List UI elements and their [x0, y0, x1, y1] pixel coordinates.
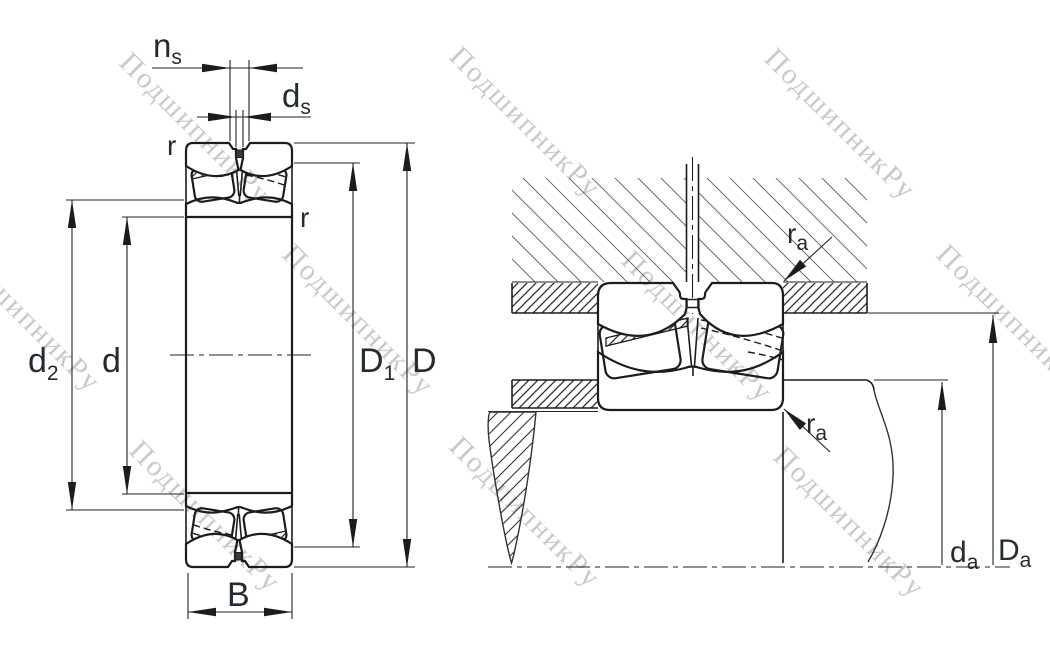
label-r-outer: r — [167, 130, 176, 161]
label-B: B — [227, 576, 250, 614]
label-ns: ns — [153, 27, 182, 69]
watermark: ПодшипникРу — [930, 238, 1050, 402]
label-d: d — [102, 342, 121, 380]
label-ds: ds — [282, 77, 311, 119]
housing-seat-band — [512, 283, 598, 313]
label-da: da — [950, 536, 979, 574]
watermark: ПодшипникРу — [113, 46, 277, 210]
dim-Da: Da — [868, 313, 1032, 572]
watermark: ПодшипникРу — [767, 440, 931, 604]
lube-hole-section — [237, 150, 244, 158]
label-ra-shaft: ra — [806, 408, 827, 445]
label-r-inner: r — [300, 202, 309, 233]
watermark-layer: ПодшипникРу ПодшипникРу ПодшипникРу Подш… — [0, 40, 1050, 604]
housing — [512, 157, 867, 314]
label-Da: Da — [998, 534, 1032, 572]
label-D: D — [412, 342, 437, 380]
bearing-drawing: ПодшипникРу ПодшипникРу ПодшипникРу Подш… — [0, 0, 1050, 650]
housing-seat-band — [783, 283, 867, 313]
watermark: ПодшипникРу — [123, 434, 287, 598]
right-view-mounting: ra ra da Da — [488, 157, 1032, 574]
lube-hole-section — [687, 300, 698, 308]
shaft-abutment-band — [512, 380, 598, 408]
shaft-step-top — [783, 380, 874, 390]
lube-hole-section — [235, 553, 242, 561]
